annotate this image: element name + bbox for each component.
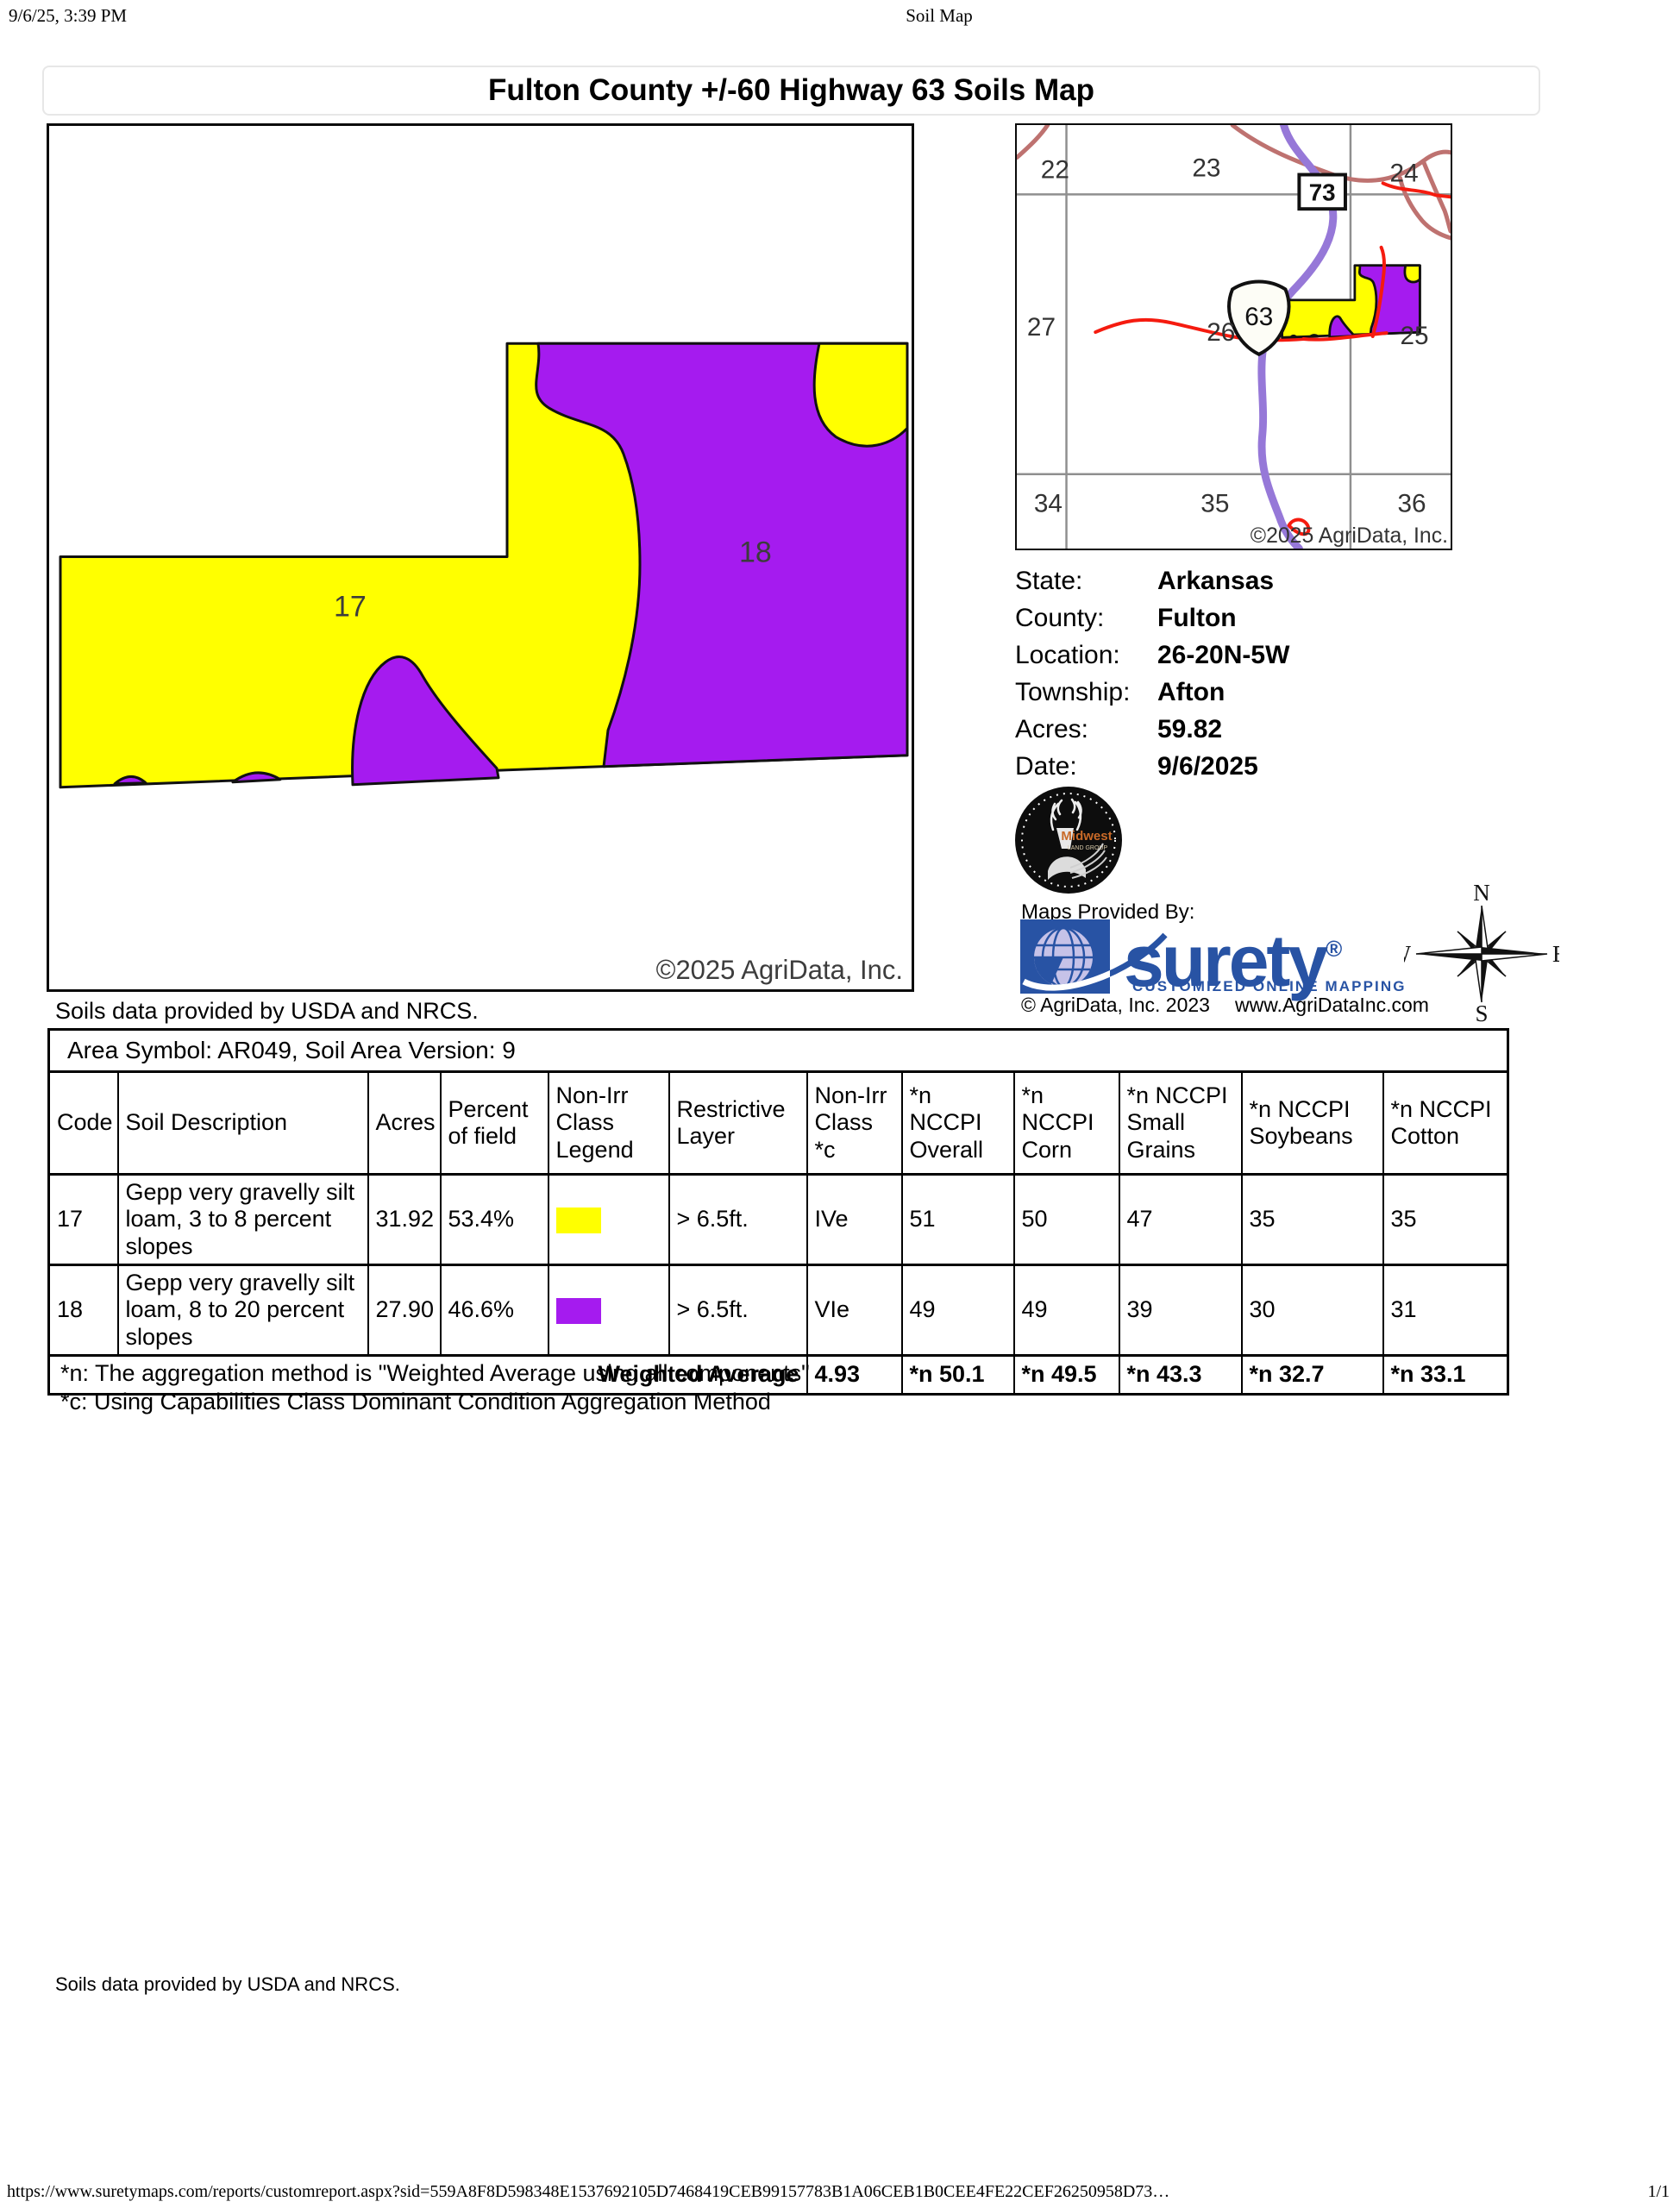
soils-table: Area Symbol: AR049, Soil Area Version: 9… <box>47 1028 1507 1396</box>
info-row-township: Township:Afton <box>1015 674 1412 711</box>
compass-n: N <box>1473 885 1490 906</box>
info-row-state: State:Arkansas <box>1015 562 1412 599</box>
col-legend: Non-Irr Class Legend <box>549 1072 669 1175</box>
col-nccpi-corn: *n NCCPI Corn <box>1014 1072 1119 1175</box>
svg-text:34: 34 <box>1034 489 1063 517</box>
legend-swatch-17 <box>556 1207 601 1233</box>
page-title: Fulton County +/-60 Highway 63 Soils Map <box>44 67 1539 114</box>
svg-text:23: 23 <box>1192 154 1220 183</box>
info-row-county: County:Fulton <box>1015 599 1412 637</box>
main-soil-map: 17 18 ©2025 AgriData, Inc. <box>47 123 914 992</box>
svg-text:24: 24 <box>1390 159 1419 187</box>
compass-e: E <box>1552 941 1559 967</box>
print-footer-page: 1/1 <box>1618 2182 1670 2202</box>
highway-73-badge: 73 <box>1299 175 1345 210</box>
svg-text:36: 36 <box>1397 489 1426 517</box>
col-percent: Percent of field <box>441 1072 549 1175</box>
print-datetime: 9/6/25, 3:39 PM <box>9 5 127 27</box>
soil-label-17: 17 <box>334 591 367 624</box>
info-row-location: Location:26-20N-5W <box>1015 637 1412 674</box>
soil-row-17: 17 Gepp very gravelly silt loam, 3 to 8 … <box>49 1175 1508 1265</box>
svg-text:26: 26 <box>1207 318 1235 347</box>
registered-mark: ® <box>1326 936 1342 962</box>
compass-rose: N E S W <box>1404 885 1559 1023</box>
inset-map-copyright: ©2025 AgriData, Inc. <box>1251 524 1448 548</box>
compass-s: S <box>1475 1000 1488 1023</box>
svg-text:22: 22 <box>1041 156 1069 185</box>
legend-swatch-18 <box>556 1298 601 1324</box>
svg-text:35: 35 <box>1200 489 1229 517</box>
table-header-row: Code Soil Description Acres Percent of f… <box>49 1072 1508 1175</box>
svg-text:63: 63 <box>1244 303 1273 331</box>
info-row-acres: Acres:59.82 <box>1015 711 1412 748</box>
compass-cardinal-points <box>1416 906 1547 1002</box>
surety-tagline: CUSTOMIZED ONLINE MAPPING <box>1132 978 1407 995</box>
main-map-copyright: ©2025 AgriData, Inc. <box>656 955 903 985</box>
col-nccpi-soybeans: *n NCCPI Soybeans <box>1242 1072 1383 1175</box>
main-soil-map-svg: 17 18 ©2025 AgriData, Inc. <box>49 126 912 989</box>
secondary-roads <box>1017 125 1451 238</box>
col-nccpi-cotton: *n NCCPI Cotton <box>1383 1072 1508 1175</box>
parcel <box>60 343 907 787</box>
area-symbol-row: Area Symbol: AR049, Soil Area Version: 9 <box>49 1030 1508 1072</box>
col-restrictive-layer: Restrictive Layer <box>669 1072 807 1175</box>
area-symbol-label: Area Symbol: AR049, Soil Area Version: 9 <box>49 1030 1508 1072</box>
svg-text:27: 27 <box>1027 313 1056 342</box>
col-nccpi-overall: *n NCCPI Overall <box>902 1072 1014 1175</box>
col-non-irr-class: Non-Irr Class *c <box>807 1072 902 1175</box>
print-footer-url: https://www.suretymaps.com/reports/custo… <box>7 2182 1169 2202</box>
info-row-date: Date:9/6/2025 <box>1015 748 1412 785</box>
svg-text:25: 25 <box>1400 322 1428 350</box>
col-nccpi-small-grains: *n NCCPI Small Grains <box>1119 1072 1242 1175</box>
soils-data-note-bottom: Soils data provided by USDA and NRCS. <box>55 1973 400 1996</box>
soil-row-18: 18 Gepp very gravelly silt loam, 8 to 20… <box>49 1265 1508 1356</box>
inset-map-svg: 73 63 22 23 24 27 26 25 34 35 36 ©2025 A… <box>1017 125 1451 549</box>
soils-data-note: Soils data provided by USDA and NRCS. <box>55 998 479 1025</box>
compass-w: W <box>1404 941 1412 967</box>
deer-logo-svg: Midwest LAND GROUP <box>1013 785 1124 895</box>
print-doc-title: Soil Map <box>810 5 1069 27</box>
red-roads <box>1095 183 1451 534</box>
col-acres: Acres <box>368 1072 441 1175</box>
midwest-land-group-logo: Midwest LAND GROUP <box>1013 785 1124 895</box>
svg-text:73: 73 <box>1309 179 1336 205</box>
footnote-n: *n: The aggregation method is "Weighted … <box>60 1359 810 1388</box>
agridata-website: www.AgriDataInc.com <box>1235 994 1429 1017</box>
route-63-shield: 63 <box>1229 282 1289 354</box>
soil-label-18: 18 <box>739 536 772 568</box>
footnote-c: *c: Using Capabilities Class Dominant Co… <box>60 1388 810 1416</box>
agridata-copyright: © AgriData, Inc. 2023 <box>1021 994 1210 1017</box>
footnotes: *n: The aggregation method is "Weighted … <box>60 1359 810 1416</box>
location-info: State:Arkansas County:Fulton Location:26… <box>1015 562 1412 785</box>
midwest-wordmark: Midwest <box>1061 829 1112 844</box>
col-soil-description: Soil Description <box>118 1072 368 1175</box>
col-code: Code <box>49 1072 118 1175</box>
compass-svg: N E S W <box>1404 885 1559 1023</box>
report-title-box: Fulton County +/-60 Highway 63 Soils Map <box>42 66 1540 116</box>
inset-section-map: 73 63 22 23 24 27 26 25 34 35 36 ©2025 A… <box>1015 123 1452 550</box>
midwest-sub-label: LAND GROUP <box>1068 845 1108 851</box>
